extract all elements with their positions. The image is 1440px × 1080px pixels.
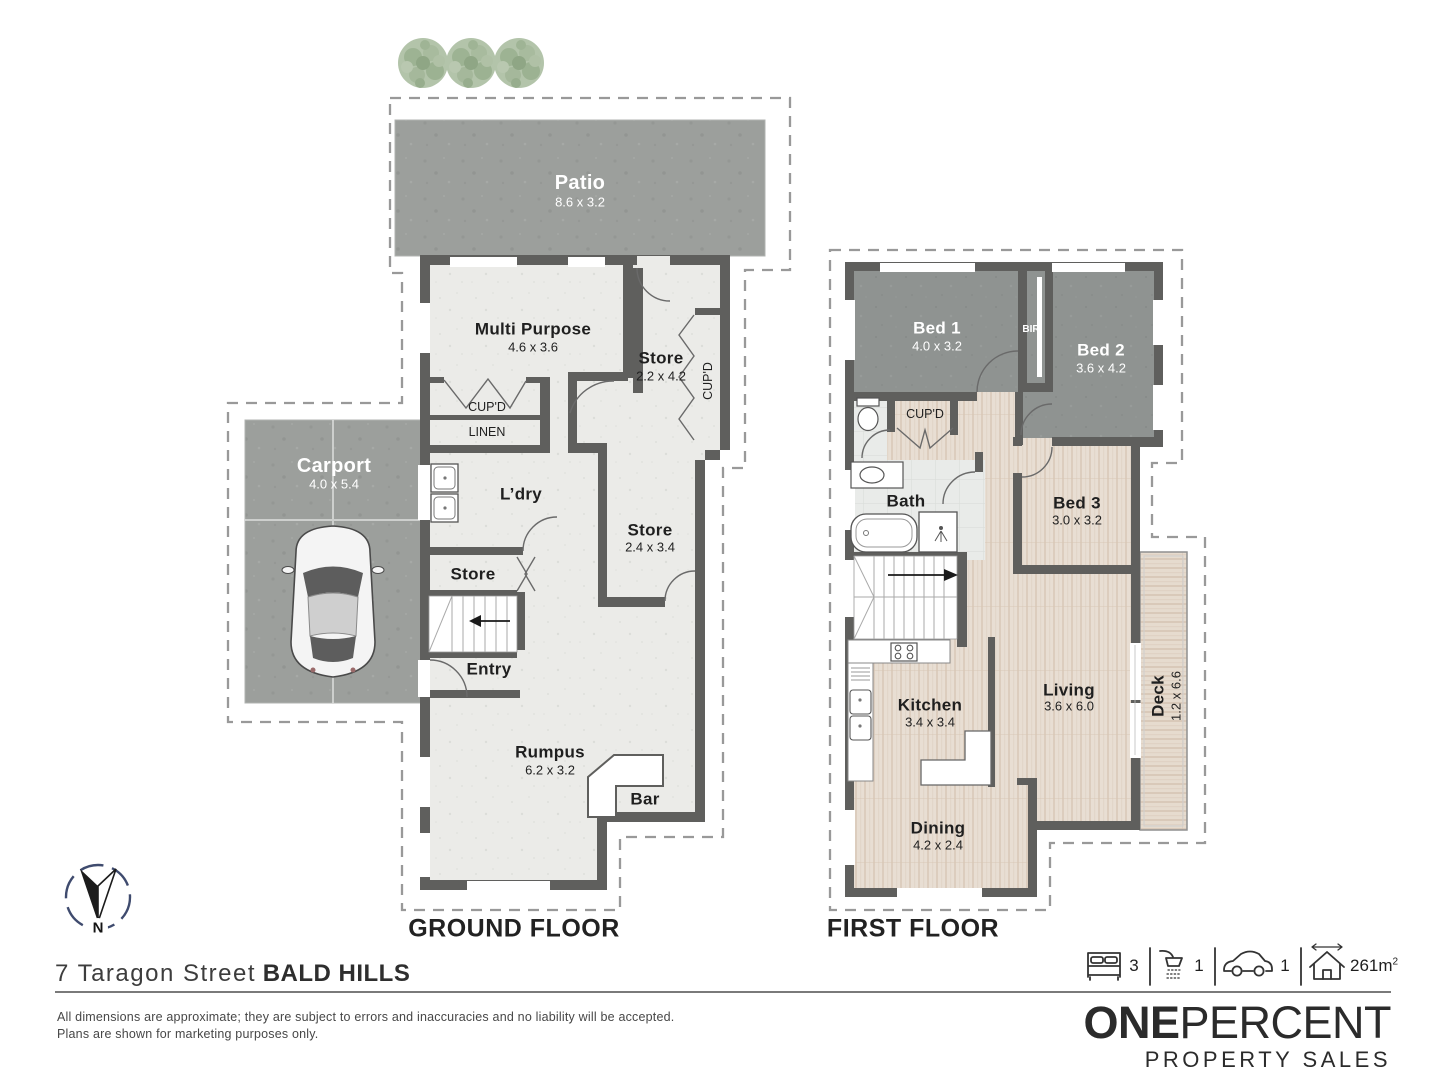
living-label: Living (1043, 682, 1095, 699)
laundry-label: L’dry (500, 486, 542, 503)
beds-count: 3 (1129, 956, 1138, 976)
carport-dims: 4.0 x 5.4 (309, 478, 359, 491)
agency-name: ONEPERCENT (1083, 1000, 1391, 1045)
floorplan-graphics (0, 0, 1440, 1080)
agency-name-bold: ONE (1083, 997, 1179, 1048)
agency-name-light: PERCENT (1179, 997, 1391, 1048)
agency-tagline: PROPERTY SALES (1083, 1049, 1391, 1071)
multi-purpose-label: Multi Purpose (475, 321, 591, 338)
ground-stairs (429, 596, 517, 652)
linen-label: LINEN (469, 426, 506, 439)
deck-label: Deck (1150, 675, 1167, 717)
bed2-dims: 3.6 x 4.2 (1076, 362, 1126, 375)
bir-label: BIR (1022, 325, 1039, 335)
rumpus-dims: 6.2 x 3.2 (525, 764, 575, 777)
cupd-vertical-label: CUP'D (702, 362, 715, 400)
first-floor-plan (830, 250, 1205, 910)
bed3-dims: 3.0 x 3.2 (1052, 514, 1102, 527)
ground-floor-title: GROUND FLOOR (408, 917, 620, 942)
store-mid-dims: 2.4 x 3.4 (625, 541, 675, 554)
cupd-ff-label: CUP'D (906, 408, 944, 421)
area-value: 261m2 (1350, 956, 1398, 976)
store-upper-dims: 2.2 x 4.2 (636, 370, 686, 383)
patio-dims: 8.6 x 3.2 (555, 196, 605, 209)
kitchen-dims: 3.4 x 3.4 (905, 716, 955, 729)
baths-count: 1 (1194, 956, 1203, 976)
bath-label: Bath (887, 493, 926, 510)
car-icon (1224, 952, 1272, 976)
disclaimer-line2: Plans are shown for marketing purposes o… (57, 1027, 318, 1041)
compass-north-label: N (93, 920, 104, 937)
agency-logo: ONEPERCENT PROPERTY SALES (1083, 1000, 1391, 1071)
store-upper-label: Store (639, 350, 684, 367)
cupd-label: CUP'D (468, 401, 506, 414)
address-suburb: BALD HILLS (263, 960, 411, 987)
entry-label: Entry (467, 661, 512, 678)
bed2-label: Bed 2 (1077, 342, 1125, 359)
floorplan-page: Patio 8.6 x 3.2 Carport 4.0 x 5.4 Multi … (0, 0, 1440, 1080)
address-street: 7 Taragon Street (55, 960, 256, 987)
bed1-label: Bed 1 (913, 320, 961, 337)
rumpus-label: Rumpus (515, 744, 585, 761)
multi-purpose-dims: 4.6 x 3.6 (508, 341, 558, 354)
disclaimer-line1: All dimensions are approximate; they are… (57, 1010, 674, 1024)
bed-icon (1088, 953, 1120, 980)
area-number: 261m (1350, 956, 1393, 975)
area-icon (1310, 944, 1344, 979)
area-superscript: 2 (1393, 956, 1399, 967)
kitchen-label: Kitchen (898, 697, 962, 714)
cars-count: 1 (1280, 956, 1289, 976)
store-mid-label: Store (628, 522, 673, 539)
property-address: 7 Taragon Street BALD HILLS (55, 960, 410, 988)
store-small-label: Store (451, 566, 496, 583)
shower-icon (1160, 951, 1182, 978)
bed3-label: Bed 3 (1053, 495, 1101, 512)
bed1-dims: 4.0 x 3.2 (912, 340, 962, 353)
car-top-view (282, 526, 384, 677)
carport-label: Carport (297, 456, 371, 476)
trees (398, 38, 544, 88)
living-dims: 3.6 x 6.0 (1044, 700, 1094, 713)
dining-dims: 4.2 x 2.4 (913, 839, 963, 852)
deck-dims: 1.2 x 6.6 (1170, 671, 1183, 721)
patio-label: Patio (555, 173, 605, 193)
ground-floor-plan (228, 98, 790, 910)
dining-label: Dining (911, 820, 966, 837)
first-floor-stairs (854, 556, 958, 639)
first-floor-title: FIRST FLOOR (827, 917, 999, 942)
bar-label: Bar (630, 791, 659, 808)
